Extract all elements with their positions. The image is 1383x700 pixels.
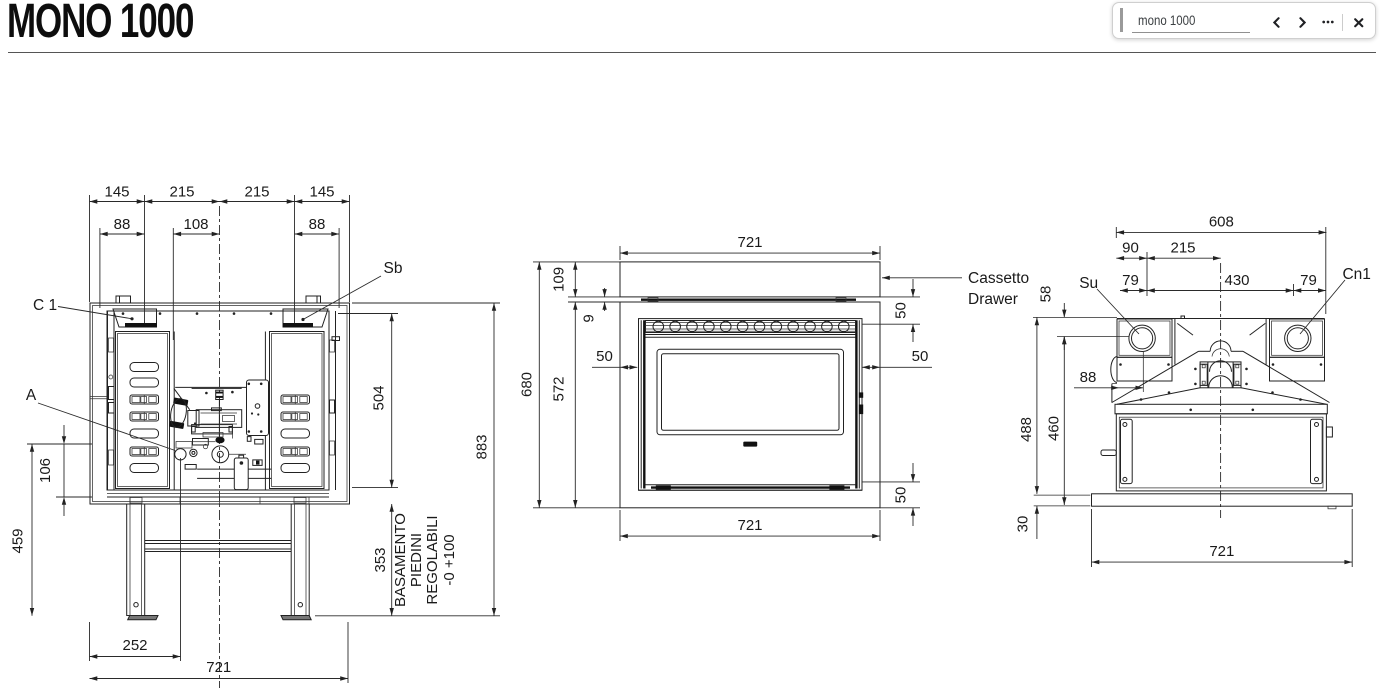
svg-text:A: A [26,387,37,404]
svg-text:50: 50 [893,302,910,319]
svg-text:9: 9 [581,314,598,322]
svg-text:572: 572 [551,376,568,401]
svg-text:PIEDINI: PIEDINI [408,533,425,587]
svg-text:79: 79 [1300,272,1317,289]
svg-text:50: 50 [596,348,613,365]
svg-text:459: 459 [10,528,27,553]
svg-text:721: 721 [206,659,231,676]
svg-text:353: 353 [372,547,389,572]
svg-text:215: 215 [1170,240,1195,257]
svg-text:215: 215 [169,184,194,201]
svg-text:680: 680 [519,372,536,397]
svg-text:REGOLABILI: REGOLABILI [424,515,441,604]
svg-text:215: 215 [244,184,269,201]
svg-text:252: 252 [122,637,147,654]
svg-text:Drawer: Drawer [968,291,1018,308]
svg-text:109: 109 [551,267,568,292]
svg-text:Sb: Sb [384,260,403,277]
svg-text:88: 88 [309,216,326,233]
svg-text:145: 145 [104,184,129,201]
svg-text:721: 721 [737,517,762,534]
svg-text:-0 +100: -0 +100 [441,534,458,585]
svg-text:50: 50 [893,487,910,504]
svg-text:504: 504 [371,385,388,410]
svg-text:50: 50 [912,348,929,365]
svg-text:88: 88 [1080,369,1097,386]
svg-text:58: 58 [1038,286,1055,303]
svg-text:88: 88 [114,216,131,233]
svg-text:106: 106 [37,458,54,483]
svg-text:Su: Su [1079,275,1098,292]
svg-text:430: 430 [1224,272,1249,289]
svg-text:30: 30 [1015,516,1032,533]
svg-text:Cassetto: Cassetto [968,270,1029,287]
svg-text:C 1: C 1 [33,297,57,314]
svg-text:Cn1: Cn1 [1342,266,1370,283]
svg-text:BASAMENTO: BASAMENTO [392,513,409,607]
svg-text:145: 145 [309,184,334,201]
svg-text:79: 79 [1122,272,1139,289]
svg-text:108: 108 [183,216,208,233]
svg-text:721: 721 [737,234,762,251]
svg-text:721: 721 [1209,543,1234,560]
svg-text:90: 90 [1122,240,1139,257]
svg-text:488: 488 [1018,417,1035,442]
svg-text:460: 460 [1045,416,1062,441]
svg-text:608: 608 [1209,214,1234,231]
svg-text:883: 883 [474,434,491,459]
